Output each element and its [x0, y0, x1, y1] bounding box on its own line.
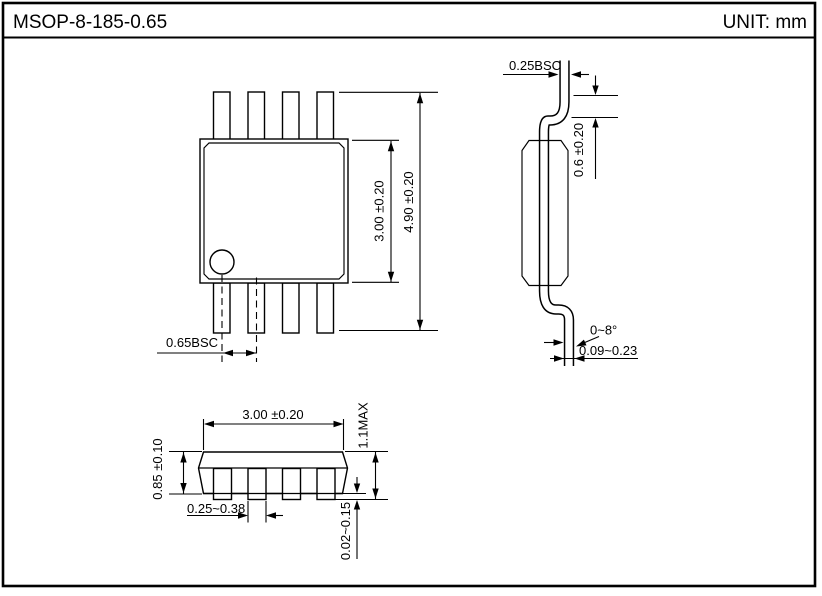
- dim-body-width-label: 3.00 ±0.20: [242, 407, 303, 422]
- pin: [317, 469, 335, 500]
- front-view: 3.00 ±0.20 0.85 ±0.10: [150, 402, 388, 560]
- dim-standoff-label: 0.02~0.15: [338, 502, 353, 560]
- dim-lead-width: 0.25~0.38: [187, 501, 283, 523]
- arrowhead-down-icon: [372, 489, 378, 499]
- pin: [317, 283, 334, 333]
- dim-foot-thickness: 0.09~0.23: [550, 343, 638, 362]
- dim-lead-thickness: 0.25BSC: [503, 58, 589, 78]
- pin: [283, 469, 301, 500]
- sheet-border: [3, 3, 815, 586]
- pin: [283, 92, 300, 140]
- dim-foot-length: 0.6 ±0.20: [571, 76, 618, 180]
- dim-lead-thickness-label: 0.25BSC: [509, 58, 561, 73]
- arrowhead-left-icon: [223, 350, 233, 356]
- dim-body-label: 3.00 ±0.20: [372, 180, 387, 241]
- dim-foot-length-label: 0.6 ±0.20: [571, 123, 586, 177]
- unit-label: UNIT: mm: [723, 12, 807, 33]
- pin: [248, 92, 265, 140]
- dim-lead-width-label: 0.25~0.38: [187, 501, 245, 516]
- arrowhead-down-icon: [592, 86, 598, 96]
- pin: [214, 92, 231, 140]
- arrowhead-right-icon: [554, 355, 564, 361]
- arrowhead-right-icon: [246, 350, 256, 356]
- arrowhead-down-icon: [354, 484, 360, 494]
- arrowhead-down-icon: [388, 272, 394, 282]
- arrowhead-up-icon: [388, 141, 394, 151]
- arrowhead-down-icon: [417, 320, 423, 330]
- dim-pitch: 0.65BSC: [157, 335, 256, 356]
- dim-foot-thickness-label: 0.09~0.23: [579, 343, 637, 358]
- arrowhead-left-icon: [571, 71, 581, 77]
- dim-body: 3.00 ±0.20: [352, 140, 399, 282]
- dim-pitch-label: 0.65BSC: [166, 335, 218, 350]
- dim-foot-angle-label: 0~8°: [590, 323, 617, 338]
- arrowhead-up-icon: [592, 118, 598, 128]
- dim-height-max-label: 1.1MAX: [356, 402, 371, 449]
- pin: [214, 469, 232, 500]
- arrowhead-up-icon: [180, 453, 186, 463]
- pin: [317, 92, 334, 140]
- arrowhead-up-icon: [354, 500, 360, 510]
- top-view: 0.65BSC 3.00 ±0.20 4.90 ±0.20: [157, 92, 438, 362]
- arrowhead-down-icon: [180, 483, 186, 493]
- package-body-top: [200, 139, 348, 283]
- arrowhead-left-icon: [204, 421, 214, 427]
- arrowhead-left-icon: [266, 512, 276, 518]
- title-block: MSOP-8-185-0.65 UNIT: mm: [3, 3, 815, 586]
- pin: [283, 283, 300, 333]
- arrowhead-right-icon: [334, 421, 344, 427]
- side-view: 0.25BSC 0.6 ±0.20 0~8° 0.09~0.23: [503, 58, 638, 366]
- package-outline-drawing: MSOP-8-185-0.65 UNIT: mm 0.65BSC: [0, 0, 822, 591]
- arrowhead-right-icon: [554, 339, 564, 345]
- drawing-sheet: MSOP-8-185-0.65 UNIT: mm 0.65BSC: [0, 0, 822, 591]
- dim-overall: 4.90 ±0.20: [339, 92, 438, 330]
- dim-body-thickness-label: 0.85 ±0.10: [150, 438, 165, 499]
- arrowhead-up-icon: [372, 453, 378, 463]
- arrowhead-up-icon: [417, 93, 423, 103]
- dim-body-width: 3.00 ±0.20: [204, 407, 344, 450]
- page-title: MSOP-8-185-0.65: [13, 12, 167, 33]
- pin: [248, 469, 266, 500]
- dim-overall-label: 4.90 ±0.20: [401, 171, 416, 232]
- dim-body-thickness: 0.85 ±0.10: [150, 438, 202, 499]
